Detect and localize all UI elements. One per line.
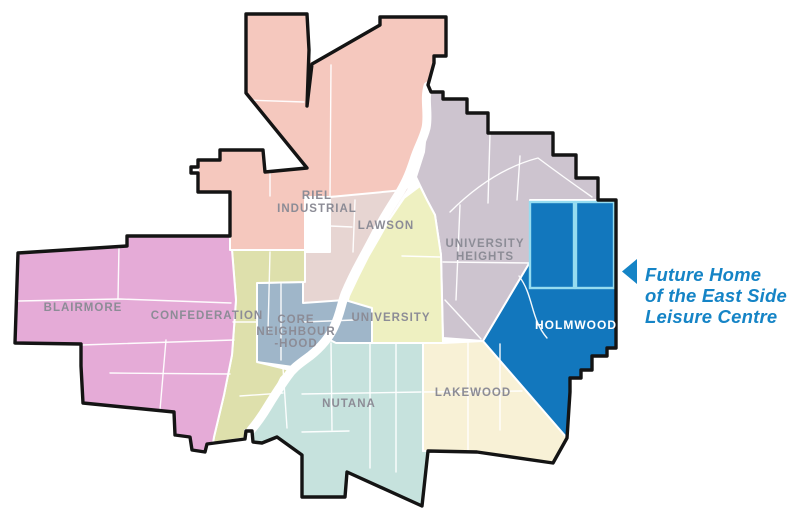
- label-nutana: NUTANA: [322, 398, 376, 410]
- label-confederation: CONFEDERATION: [151, 310, 263, 322]
- label-core-line3: -HOOD: [274, 338, 317, 350]
- label-core-line2: NEIGHBOUR: [256, 326, 335, 338]
- label-riel-line2: INDUSTRIAL: [277, 203, 357, 215]
- label-blairmore: BLAIRMORE: [44, 302, 123, 314]
- label-core-line1: CORE: [277, 314, 314, 326]
- annotation-line2: of the East Side: [645, 285, 787, 306]
- label-university-heights-line1: UNIVERSITY: [445, 238, 524, 250]
- label-riel-line1: RIEL: [302, 190, 332, 202]
- label-lakewood: LAKEWOOD: [435, 387, 511, 399]
- annotation-callout: Future Home of the East Side Leisure Cen…: [622, 259, 787, 327]
- annotation-line1: Future Home: [645, 264, 761, 285]
- saskatoon-sda-map: RIEL INDUSTRIAL LAWSON UNIVERSITY HEIGHT…: [0, 0, 800, 522]
- label-university-heights-line2: HEIGHTS: [456, 251, 514, 263]
- annotation-pointer-icon: [622, 259, 637, 284]
- annotation-line3: Leisure Centre: [645, 306, 777, 327]
- label-holmwood: HOLMWOOD: [535, 318, 617, 332]
- label-university: UNIVERSITY: [351, 312, 430, 324]
- label-lawson: LAWSON: [358, 220, 414, 232]
- map-canvas: RIEL INDUSTRIAL LAWSON UNIVERSITY HEIGHT…: [0, 0, 800, 522]
